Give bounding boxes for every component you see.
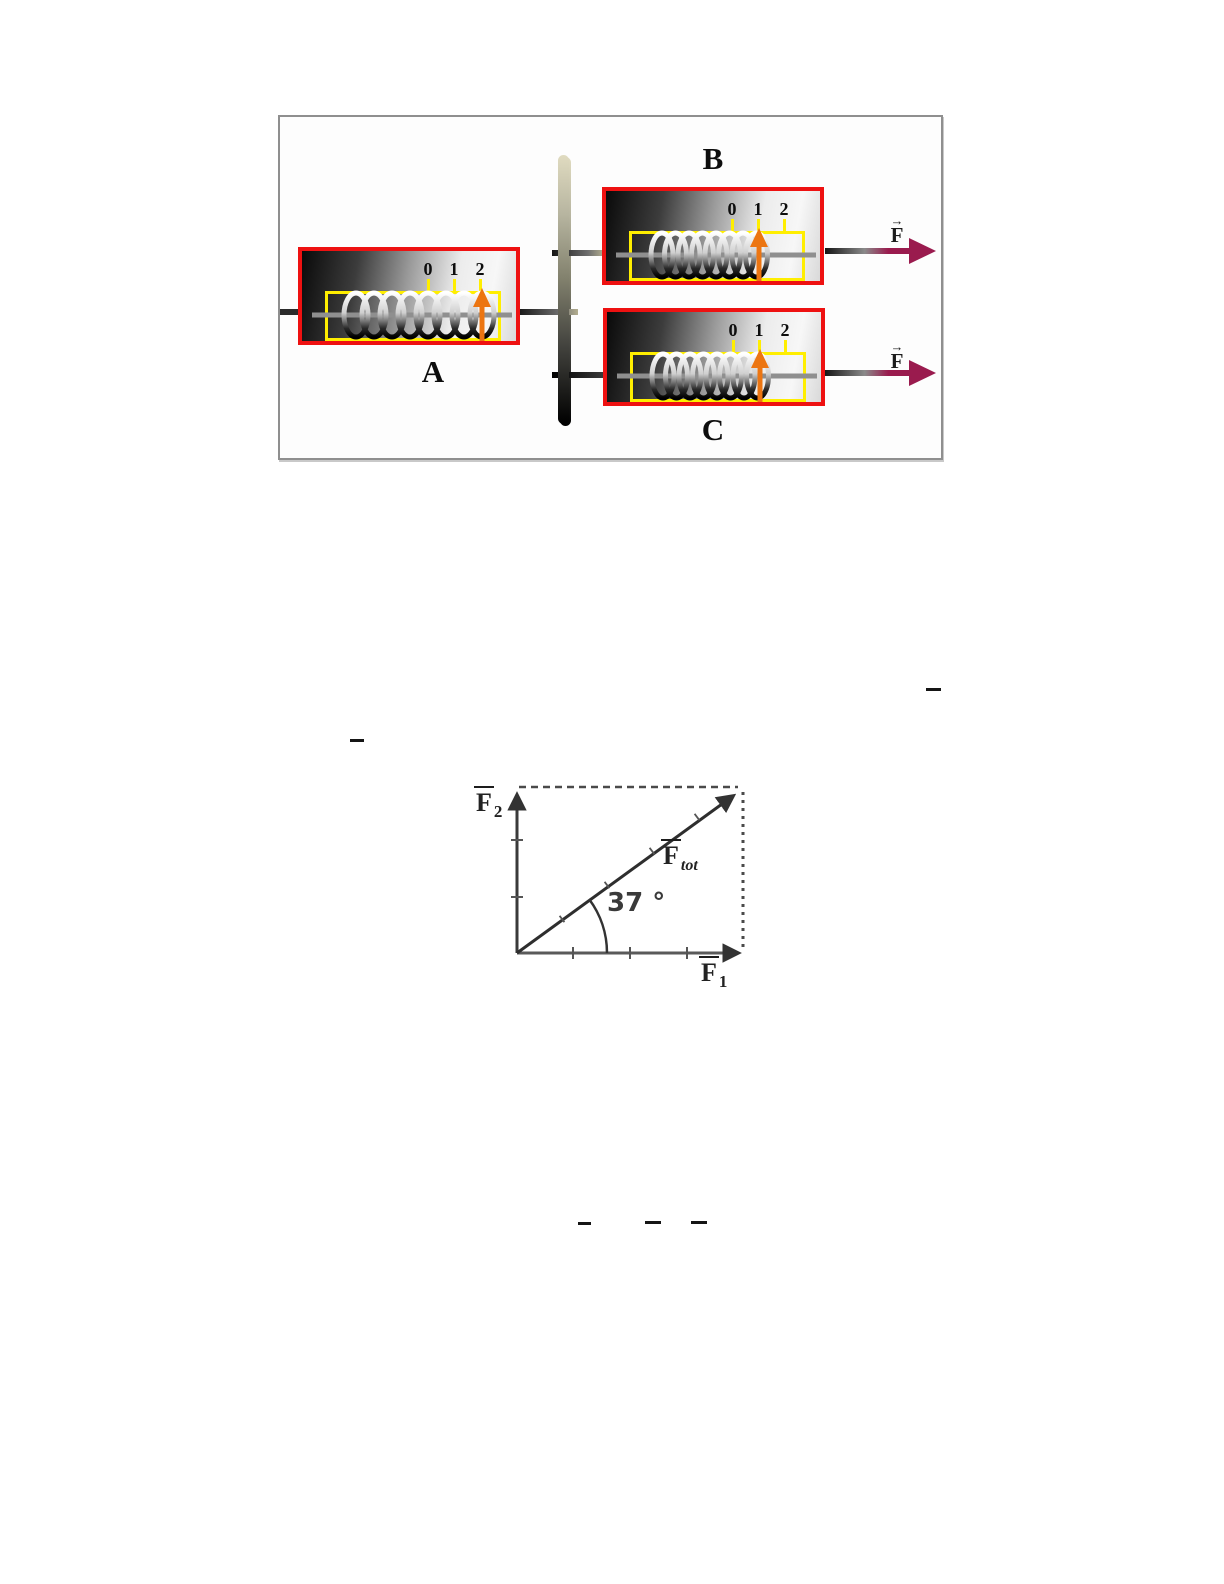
- ftot-label: Ftot: [661, 839, 698, 874]
- overline-mark: [578, 1222, 591, 1225]
- force-vector-label-b: → F: [879, 216, 915, 246]
- scale-mark-1: 1: [749, 320, 769, 341]
- label-box-b: B: [691, 141, 735, 177]
- force-vector-label-c: → F: [879, 342, 915, 372]
- scale-mark-0: 0: [723, 320, 743, 341]
- overline-mark: [645, 1221, 661, 1224]
- angle-label: 37 °: [607, 888, 665, 918]
- connector-rod-left-a: [280, 309, 300, 315]
- label-box-c: C: [691, 412, 735, 448]
- spring-graphic: [611, 346, 823, 408]
- connector-rod-a-to-bar: [518, 309, 578, 315]
- scale-mark-1: 1: [444, 259, 464, 280]
- label-box-a: A: [411, 354, 455, 390]
- scale-mark-0: 0: [418, 259, 438, 280]
- f2-label: F2: [474, 786, 502, 820]
- overline-mark: [926, 688, 941, 691]
- overline-mark: [691, 1221, 707, 1224]
- spring-box-a: 0 1 2: [298, 247, 520, 345]
- scale-mark-2: 2: [775, 320, 795, 341]
- connector-vertical-bar: [558, 155, 569, 424]
- vector-ftot: [517, 796, 733, 953]
- f1-label: F1: [699, 956, 727, 990]
- spring-box-c: 0 1 2: [603, 308, 825, 406]
- scale-mark-0: 0: [722, 199, 742, 220]
- spring-graphic: [306, 285, 518, 347]
- scale-mark-2: 2: [774, 199, 794, 220]
- scale-mark-2: 2: [470, 259, 490, 280]
- overline-mark: [350, 739, 364, 742]
- force-arrow-shaft: [825, 248, 913, 254]
- scale-mark-1: 1: [748, 199, 768, 220]
- spring-graphic: [610, 225, 822, 287]
- angle-arc: [589, 899, 607, 953]
- spring-box-b: 0 1 2: [602, 187, 824, 285]
